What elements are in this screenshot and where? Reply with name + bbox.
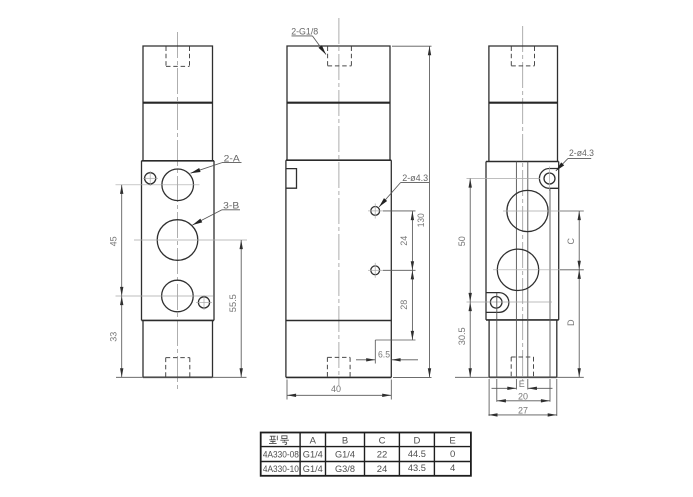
svg-text:3-B: 3-B <box>223 200 239 210</box>
svg-text:2-ø4.3: 2-ø4.3 <box>402 173 428 183</box>
svg-text:2-G1/8: 2-G1/8 <box>291 27 318 37</box>
svg-text:B: B <box>342 435 348 446</box>
svg-text:4: 4 <box>450 463 455 474</box>
svg-text:D: D <box>566 319 576 326</box>
svg-text:G1/4: G1/4 <box>303 464 323 475</box>
svg-text:40: 40 <box>331 384 341 394</box>
svg-text:4A330-08: 4A330-08 <box>263 450 299 461</box>
svg-text:C: C <box>379 435 386 446</box>
svg-text:45: 45 <box>108 236 118 246</box>
svg-text:24: 24 <box>399 236 409 246</box>
svg-text:43.5: 43.5 <box>408 463 426 474</box>
svg-text:G1/4: G1/4 <box>303 450 323 461</box>
svg-text:22: 22 <box>377 450 388 461</box>
svg-text:D: D <box>413 435 420 446</box>
svg-text:G1/4: G1/4 <box>335 450 355 461</box>
svg-text:4A330-10: 4A330-10 <box>263 464 299 475</box>
svg-text:44.5: 44.5 <box>408 449 426 460</box>
svg-text:130: 130 <box>416 213 426 227</box>
svg-text:28: 28 <box>399 300 409 310</box>
svg-text:E: E <box>449 435 455 446</box>
svg-text:30.5: 30.5 <box>457 327 467 345</box>
svg-text:24: 24 <box>377 464 388 475</box>
svg-text:50: 50 <box>457 236 467 246</box>
svg-text:20: 20 <box>518 391 528 401</box>
svg-text:A: A <box>310 435 317 446</box>
svg-text:33: 33 <box>108 332 118 342</box>
svg-text:6.5: 6.5 <box>378 350 390 360</box>
svg-text:E: E <box>519 379 525 389</box>
svg-text:2-A: 2-A <box>224 153 240 163</box>
svg-text:2-ø4.3: 2-ø4.3 <box>569 148 594 158</box>
svg-text:G3/8: G3/8 <box>335 464 355 475</box>
svg-text:0: 0 <box>450 449 455 460</box>
svg-text:55.5: 55.5 <box>228 294 238 312</box>
svg-text:C: C <box>566 237 576 244</box>
svg-text:27: 27 <box>518 405 528 415</box>
